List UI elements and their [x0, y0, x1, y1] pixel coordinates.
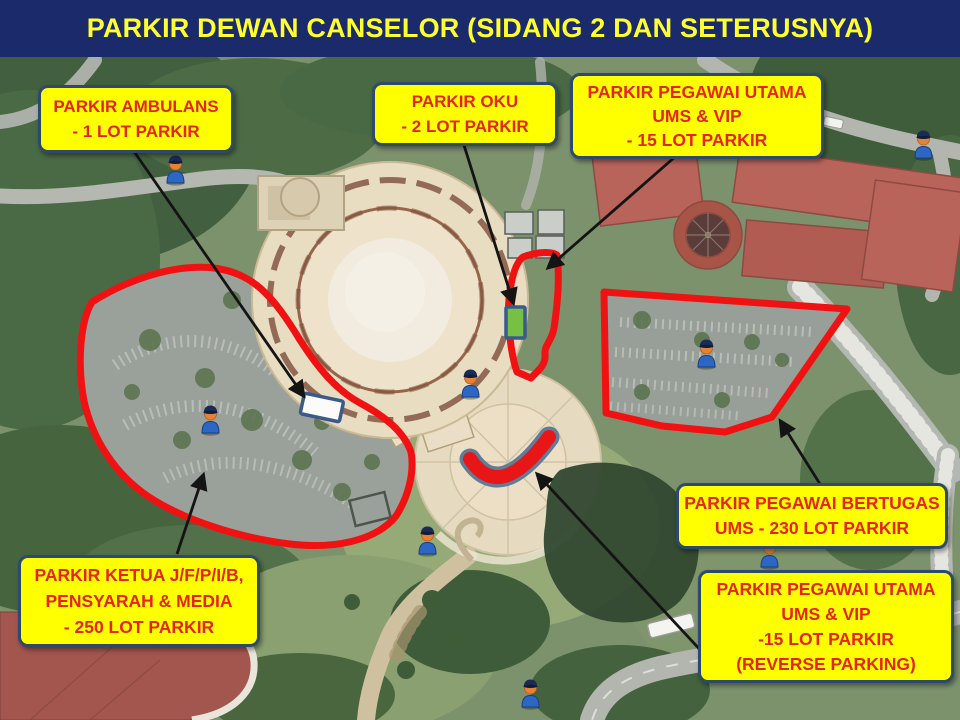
callout-line: PARKIR OKU	[375, 89, 555, 114]
header-bar: PARKIR DEWAN CANSELOR (SIDANG 2 DAN SETE…	[0, 0, 960, 57]
callout-ketua-pensyarah-media: PARKIR KETUA J/F/P/I/B, PENSYARAH & MEDI…	[18, 555, 260, 647]
oku-bay-marker	[506, 307, 525, 338]
callout-line: PARKIR PEGAWAI UTAMA	[573, 80, 821, 104]
callout-line: (REVERSE PARKING)	[701, 652, 951, 677]
callout-pegawai-bertugas: PARKIR PEGAWAI BERTUGAS UMS - 230 LOT PA…	[676, 483, 948, 549]
callout-line: PARKIR PEGAWAI UTAMA	[701, 577, 951, 602]
callout-pegawai-utama-vip-reverse: PARKIR PEGAWAI UTAMA UMS & VIP -15 LOT P…	[698, 570, 954, 683]
callout-line: PENSYARAH & MEDIA	[21, 588, 257, 614]
callout-oku: PARKIR OKU - 2 LOT PARKIR	[372, 82, 558, 146]
callout-line: PARKIR AMBULANS	[41, 94, 231, 119]
callout-ambulans: PARKIR AMBULANS - 1 LOT PARKIR	[38, 85, 234, 153]
callout-line: PARKIR PEGAWAI BERTUGAS	[679, 491, 945, 516]
callout-line: UMS - 230 LOT PARKIR	[679, 516, 945, 541]
callout-line: - 2 LOT PARKIR	[375, 114, 555, 139]
callout-line: -15 LOT PARKIR	[701, 627, 951, 652]
parking-plan-slide: PARKIR DEWAN CANSELOR (SIDANG 2 DAN SETE…	[0, 0, 960, 720]
callout-pegawai-utama-vip: PARKIR PEGAWAI UTAMA UMS & VIP - 15 LOT …	[570, 73, 824, 159]
callout-line: UMS & VIP	[701, 602, 951, 627]
callout-line: - 250 LOT PARKIR	[21, 614, 257, 640]
page-title: PARKIR DEWAN CANSELOR (SIDANG 2 DAN SETE…	[87, 13, 873, 44]
callout-line: - 1 LOT PARKIR	[41, 119, 231, 144]
callout-line: - 15 LOT PARKIR	[573, 128, 821, 152]
callout-line: PARKIR KETUA J/F/P/I/B,	[21, 562, 257, 588]
callout-line: UMS & VIP	[573, 104, 821, 128]
